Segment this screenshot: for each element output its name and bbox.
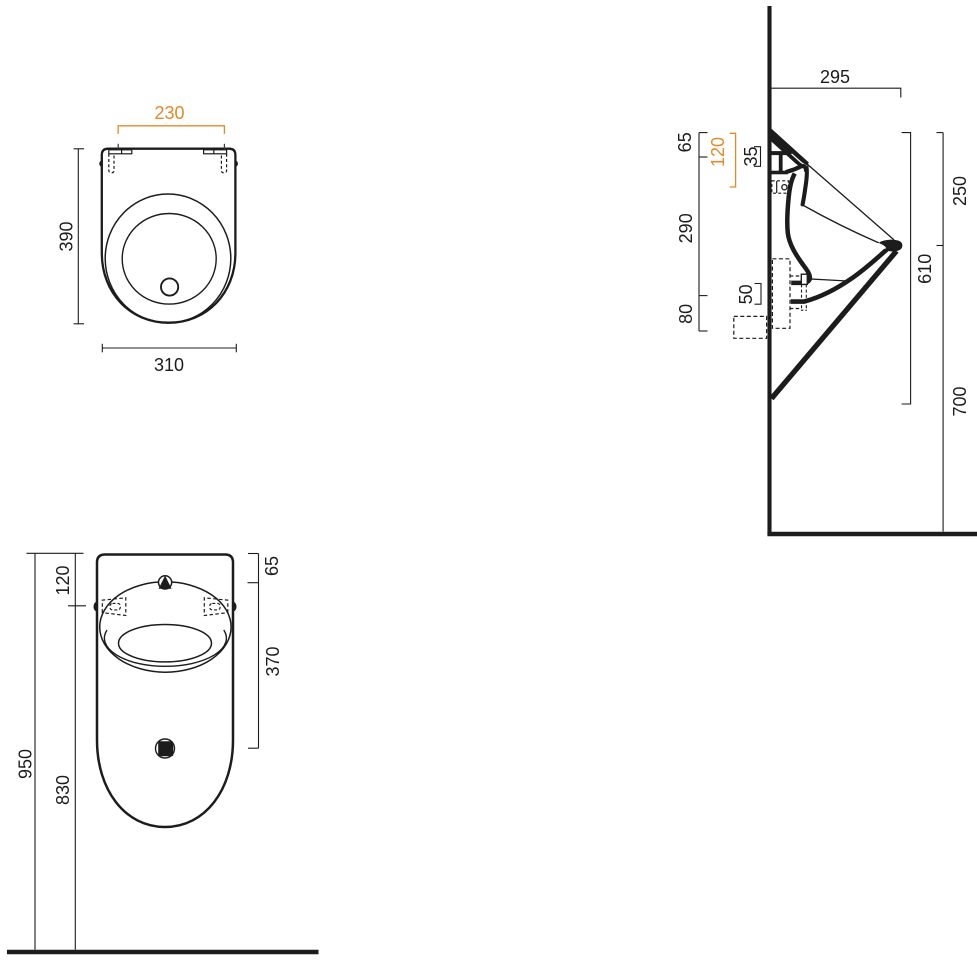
svg-text:230: 230	[154, 103, 184, 123]
svg-text:250: 250	[950, 176, 970, 206]
svg-text:65: 65	[262, 556, 282, 576]
svg-text:65: 65	[675, 132, 695, 152]
svg-text:390: 390	[56, 221, 76, 251]
svg-text:700: 700	[950, 386, 970, 416]
svg-text:35: 35	[741, 146, 761, 166]
svg-text:290: 290	[676, 213, 696, 243]
svg-text:950: 950	[15, 749, 35, 779]
svg-text:370: 370	[263, 646, 283, 676]
svg-text:830: 830	[53, 775, 73, 805]
svg-text:295: 295	[820, 67, 850, 87]
svg-text:120: 120	[708, 137, 728, 167]
svg-text:310: 310	[154, 355, 184, 375]
svg-text:80: 80	[676, 304, 696, 324]
svg-text:120: 120	[53, 565, 73, 595]
svg-text:610: 610	[915, 254, 935, 284]
svg-text:50: 50	[736, 284, 756, 304]
